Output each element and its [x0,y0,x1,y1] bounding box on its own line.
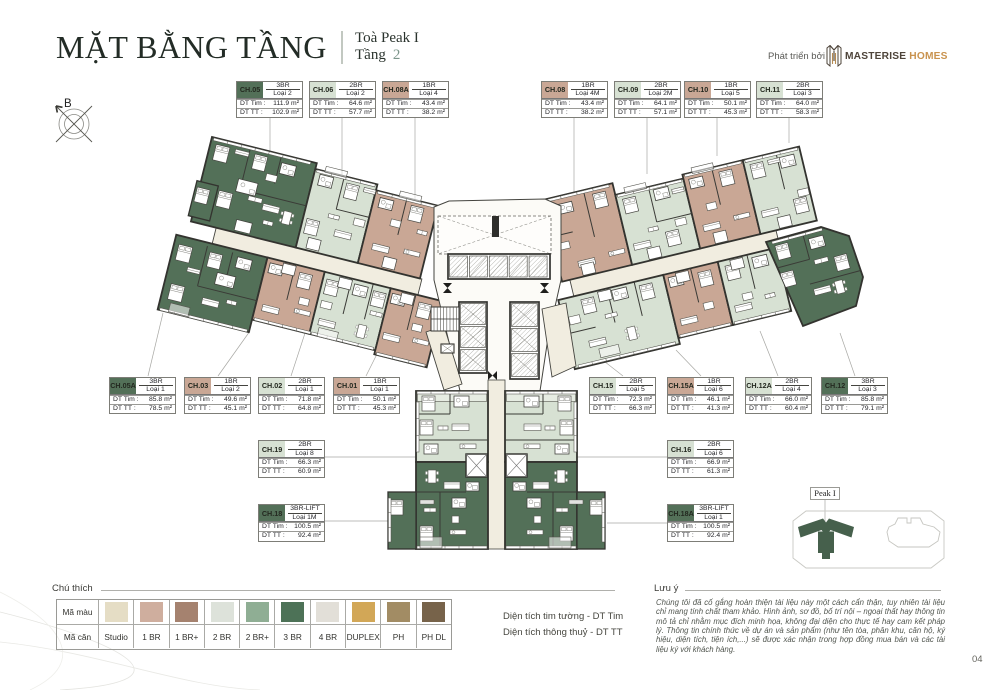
svg-text:B: B [64,98,72,110]
